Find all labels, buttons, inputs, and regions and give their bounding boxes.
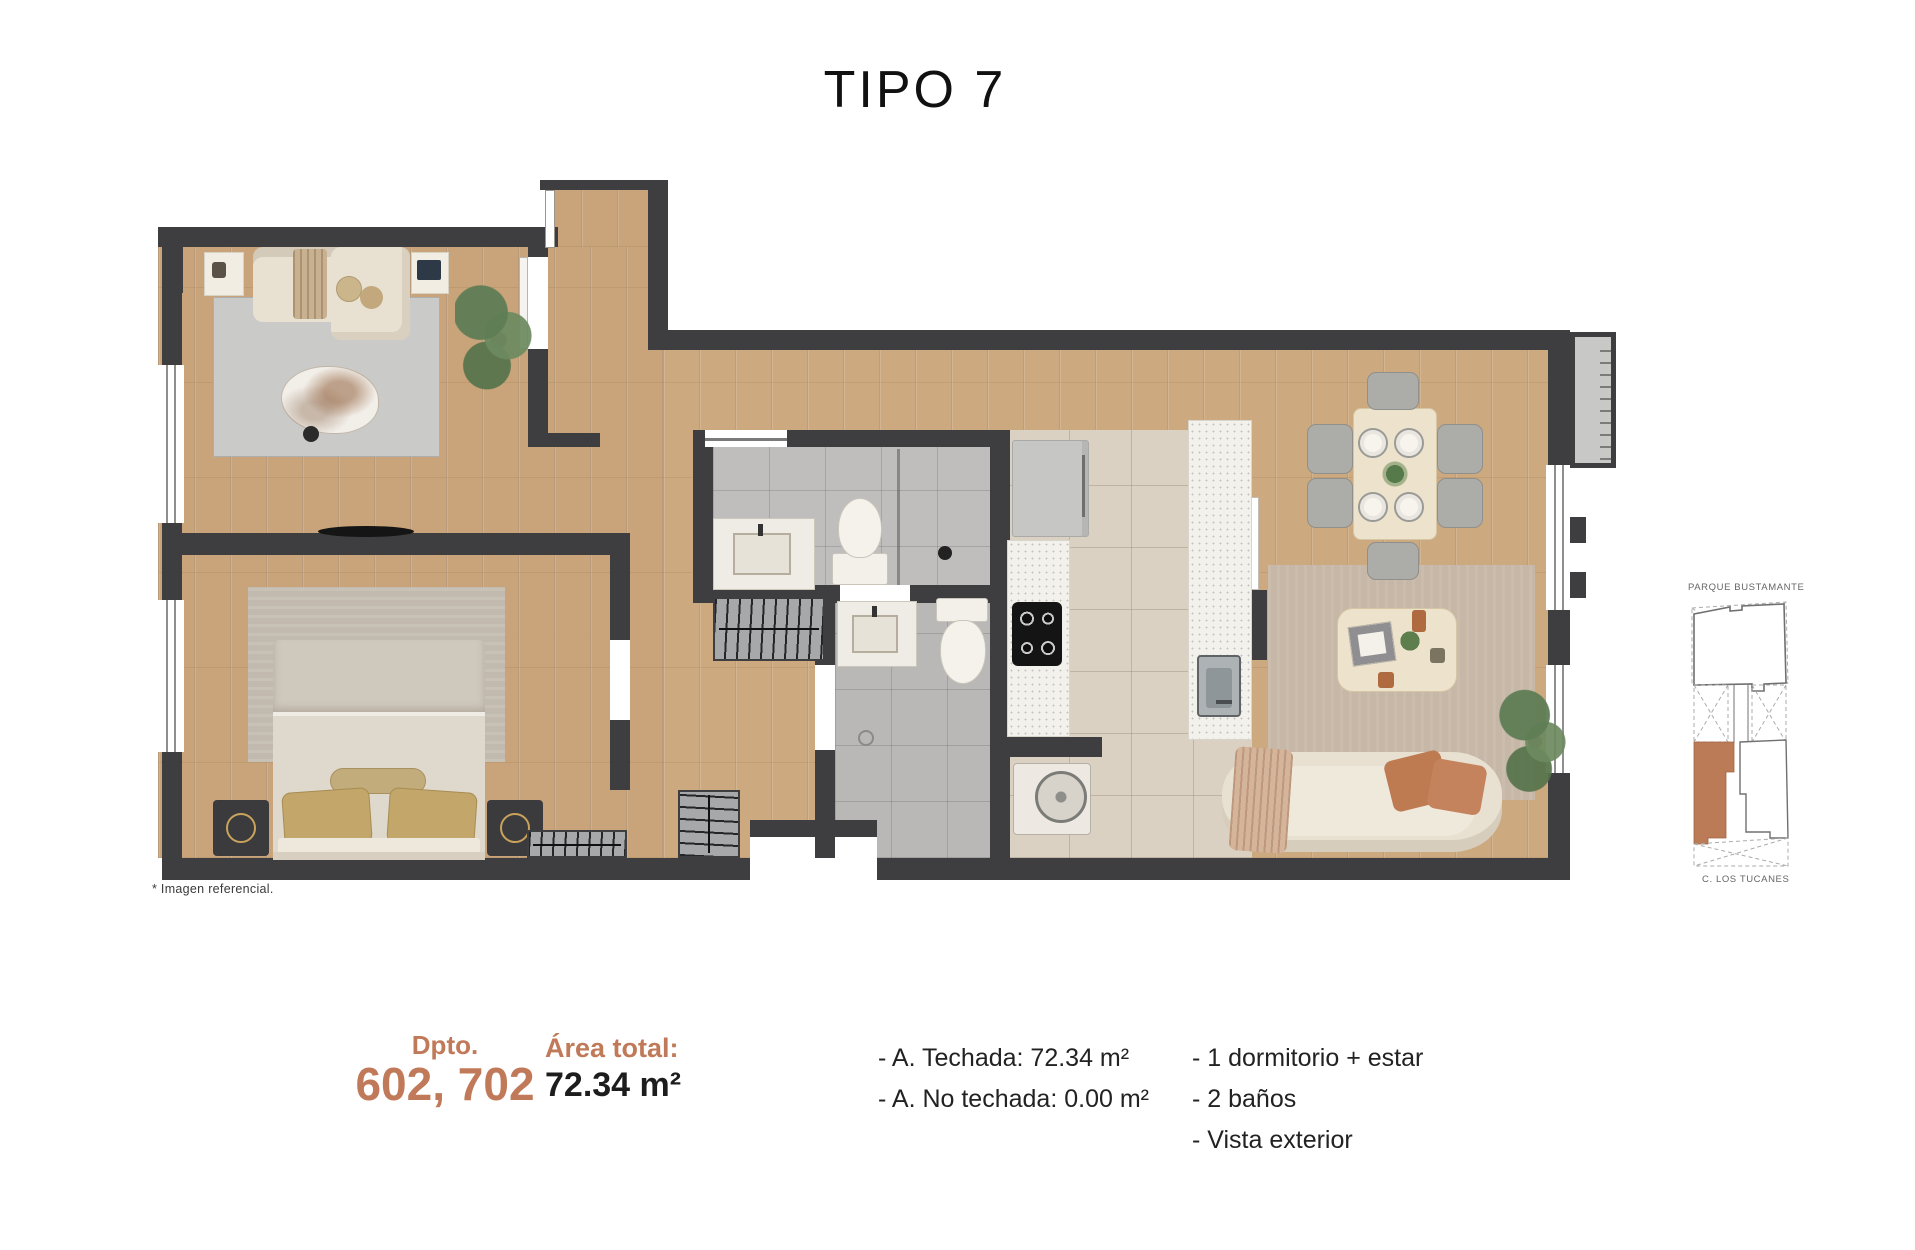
area-block: Área total: 72.34 m² (545, 1032, 745, 1105)
coffee-table-books (1347, 621, 1396, 667)
dining-chair-top (1367, 372, 1419, 410)
sofa-pillow-2 (1426, 758, 1488, 817)
estar-side-table-left-decor (212, 262, 226, 278)
page: TIPO 7 (0, 0, 1915, 1250)
dining-chair-left-2 (1307, 478, 1353, 528)
nightstand-left (213, 800, 269, 856)
feature-banos: - 2 baños (1192, 1079, 1423, 1120)
bathroom2-toilet-tank (936, 598, 988, 622)
estar-sofa-pillow-1 (336, 276, 362, 302)
wall-right-b (1548, 610, 1570, 665)
wall-left-c (162, 752, 182, 858)
dining-chair-left-1 (1307, 424, 1353, 474)
bathroom2-sink (852, 615, 898, 653)
bedroom-door-opening (610, 640, 630, 720)
washing-machine-drum (1035, 771, 1087, 823)
page-title: TIPO 7 (657, 60, 1173, 120)
detail-techada: - A. Techada: 72.34 m² (878, 1038, 1149, 1079)
wall-right-stub-1 (1570, 517, 1586, 543)
bathroom1-toilet-bowl (838, 498, 882, 558)
living-plant (1498, 686, 1572, 798)
dining-chair-right-1 (1437, 424, 1483, 474)
bathroom2-left-wall-b (815, 750, 835, 858)
dining-plate-2 (1394, 428, 1424, 458)
wall-right-a (1548, 330, 1570, 465)
dining-plate-3 (1358, 492, 1388, 522)
dining-chair-bottom (1367, 542, 1419, 580)
feature-list: - 1 dormitorio + estar - 2 baños - Vista… (1192, 1038, 1423, 1161)
minimap-bottom-label: C. LOS TUCANES (1702, 874, 1789, 885)
unit-label: Dpto. (350, 1030, 540, 1060)
detail-no-techada: - A. No techada: 0.00 m² (878, 1079, 1149, 1120)
bathroom1-shower-head (938, 546, 952, 560)
estar-decor-circle (303, 426, 319, 442)
wall-bottom-right (877, 858, 1570, 880)
reference-note: * Imagen referencial. (152, 882, 274, 896)
feature-vista: - Vista exterior (1192, 1120, 1423, 1161)
balcony-railing (1600, 340, 1612, 460)
dining-plate-1 (1358, 428, 1388, 458)
bathroom2-door-opening (815, 665, 835, 750)
bedroom-right-wall-a (610, 555, 630, 640)
unit-numbers: 602, 702 (350, 1060, 540, 1108)
wall-notch-top (750, 820, 877, 837)
bathroom1-left-wall (693, 447, 713, 603)
area-value: 72.34 m² (545, 1065, 745, 1105)
living-window-1 (1546, 465, 1572, 610)
minimap-top-label: PARQUE BUSTAMANTE (1688, 582, 1804, 593)
wall-bottom-left (162, 858, 750, 880)
area-label: Área total: (545, 1032, 745, 1065)
bathroom1-sliding-door (705, 438, 787, 441)
dining-chair-right-2 (1437, 478, 1483, 528)
closet-bedroom (527, 830, 627, 858)
coffee-table-cup (1430, 648, 1445, 663)
bathroom1-sink (733, 533, 791, 575)
estar-sofa-pillow-2 (360, 286, 383, 309)
bedroom-right-wall-b (610, 720, 630, 790)
minimap-graphic (1682, 598, 1812, 870)
estar-plant (455, 285, 535, 400)
floor-entrance-strip (545, 190, 648, 247)
exterior-notch (750, 837, 877, 880)
wall-entrance-right (648, 183, 668, 335)
wall-top-left (158, 227, 558, 247)
bathroom2-shower-drain (858, 730, 874, 746)
estar-tv (318, 526, 414, 537)
bed-duvet-top (273, 640, 485, 715)
estar-right-wall-a (528, 247, 548, 257)
wall-right-stub-2 (1570, 572, 1586, 598)
bedroom-window (158, 600, 184, 752)
fridge (1012, 440, 1089, 537)
laundry-nook-wall (990, 737, 1102, 757)
closet-hall-mid (713, 597, 825, 661)
bathroom2-toilet-bowl (940, 620, 986, 684)
unit-block: Dpto. 602, 702 (350, 1030, 540, 1108)
estar-wall-stub (528, 433, 600, 447)
divider-estar-bedroom (162, 533, 630, 555)
wall-corner-pillar (162, 247, 183, 293)
sofa-blanket (1228, 746, 1293, 854)
fridge-handle (1082, 455, 1085, 517)
area-details: - A. Techada: 72.34 m² - A. No techada: … (878, 1038, 1149, 1120)
dining-plate-4 (1394, 492, 1424, 522)
estar-side-table-right-decor (417, 260, 441, 280)
coffee-table-plant (1395, 626, 1425, 656)
kitchen-tap (1216, 700, 1232, 704)
feature-dormitorio: - 1 dormitorio + estar (1192, 1038, 1423, 1079)
coffee-table-notch-2 (1378, 672, 1394, 688)
estar-window (158, 365, 184, 523)
bathroom1-shower-glass (897, 449, 900, 585)
estar-sofa-blanket (293, 249, 327, 319)
stove-cooktop (1012, 602, 1062, 666)
closet-hall-bottom (678, 790, 740, 858)
bathroom2-tap (872, 606, 877, 617)
wall-top-right (648, 330, 1553, 350)
bed-headboard (273, 852, 485, 860)
entrance-door-leaf (545, 190, 555, 248)
bathroom1-tap (758, 524, 763, 536)
